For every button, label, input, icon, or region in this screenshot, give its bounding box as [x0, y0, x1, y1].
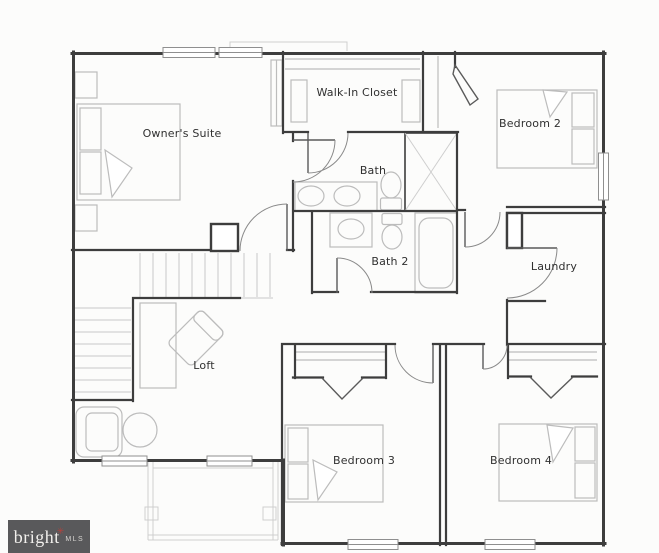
bed	[77, 104, 180, 200]
closet-shelf	[508, 352, 597, 360]
porch	[145, 462, 278, 540]
room-label-walk-in-closet: Walk-In Closet	[316, 86, 398, 99]
floorplan-drawing: Owner's Suite Walk-In Closet Bath Bedroo…	[0, 0, 659, 553]
vanity	[330, 213, 372, 247]
window	[599, 153, 609, 200]
sink	[338, 219, 364, 239]
room-label-laundry: Laundry	[531, 260, 578, 273]
stair-post	[211, 224, 238, 251]
room-label-bedroom-3: Bedroom 3	[333, 454, 395, 467]
room-label-bath: Bath	[360, 164, 386, 177]
sink	[334, 186, 360, 206]
round-table	[123, 413, 157, 447]
bath2-fixtures	[330, 213, 457, 293]
nightstand	[75, 72, 97, 98]
floorplan-page: Owner's Suite Walk-In Closet Bath Bedroo…	[0, 0, 659, 553]
nightstand	[75, 205, 97, 231]
closet-door-leaf	[453, 65, 478, 105]
shower	[405, 133, 457, 211]
toilet	[381, 172, 402, 210]
watermark-mls: MLS	[65, 536, 84, 543]
bathtub	[415, 213, 457, 293]
bedroom4-furniture	[499, 352, 597, 501]
bifold-closet-doors	[322, 377, 573, 399]
room-label-bedroom-2: Bedroom 2	[499, 117, 561, 130]
watermark-asterisk-icon: ✳	[57, 527, 65, 536]
watermark-brand: bright	[14, 528, 60, 546]
room-label-bath-2: Bath 2	[371, 255, 408, 268]
staircase	[72, 253, 273, 401]
window	[219, 48, 262, 58]
room-label-owners-suite: Owner's Suite	[143, 127, 222, 140]
owners-suite-furniture	[75, 60, 282, 231]
bedroom3-furniture	[285, 352, 386, 502]
stair-railing	[72, 298, 240, 401]
laundry-wall-return	[507, 213, 522, 248]
armchair	[76, 407, 122, 457]
window	[485, 540, 535, 550]
bedroom2-furniture	[438, 56, 597, 168]
dresser	[271, 60, 282, 126]
window	[163, 48, 215, 58]
console-table	[140, 303, 176, 388]
mls-watermark: bright ✳ MLS	[8, 520, 90, 553]
room-label-loft: Loft	[193, 359, 215, 372]
window	[348, 540, 398, 550]
room-label-bedroom-4: Bedroom 4	[490, 454, 552, 467]
closet-shelf	[295, 352, 386, 360]
toilet	[382, 214, 402, 250]
window	[207, 456, 252, 466]
window	[102, 456, 147, 466]
sink	[298, 186, 324, 206]
